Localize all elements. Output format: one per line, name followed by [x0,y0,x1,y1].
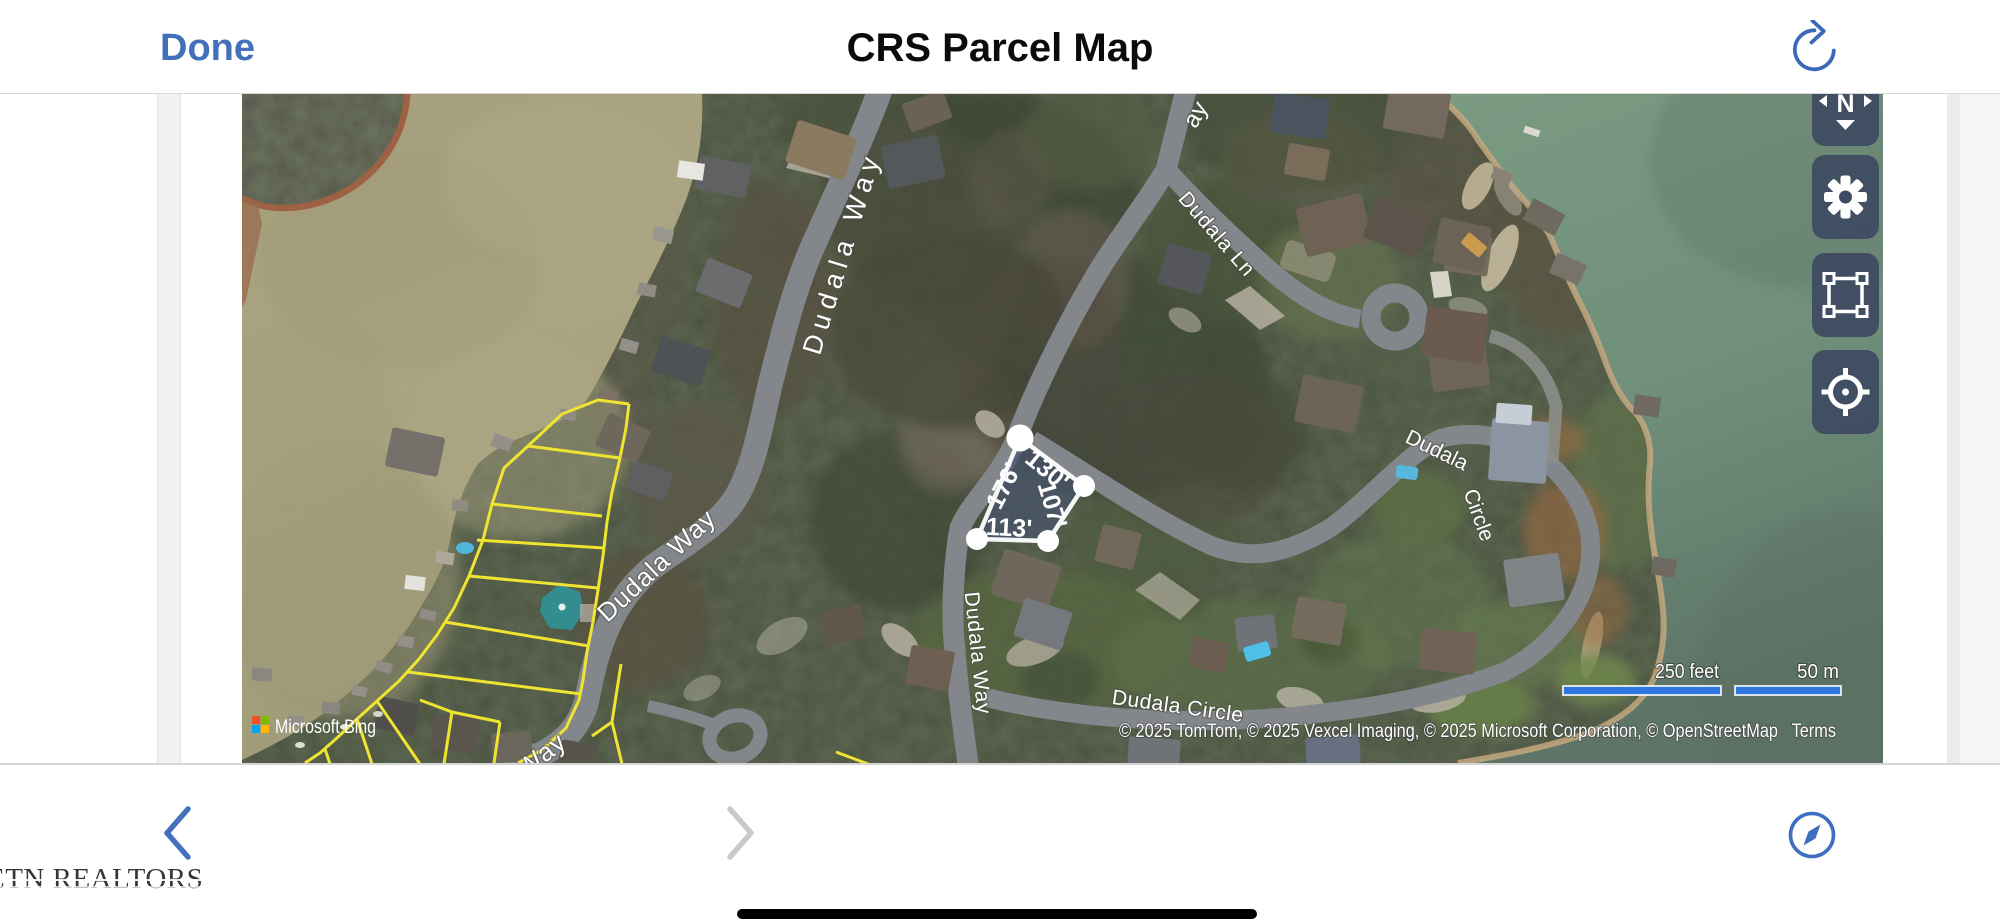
svg-text:© 2025 TomTom, © 2025 Vexcel I: © 2025 TomTom, © 2025 Vexcel Imaging, © … [1119,721,1836,742]
svg-text:50 m: 50 m [1797,660,1839,683]
svg-text:N: N [1836,94,1854,118]
svg-text:Microsoft Bing: Microsoft Bing [275,717,376,738]
svg-text:250 feet: 250 feet [1655,660,1719,683]
svg-text:113': 113' [985,513,1033,543]
